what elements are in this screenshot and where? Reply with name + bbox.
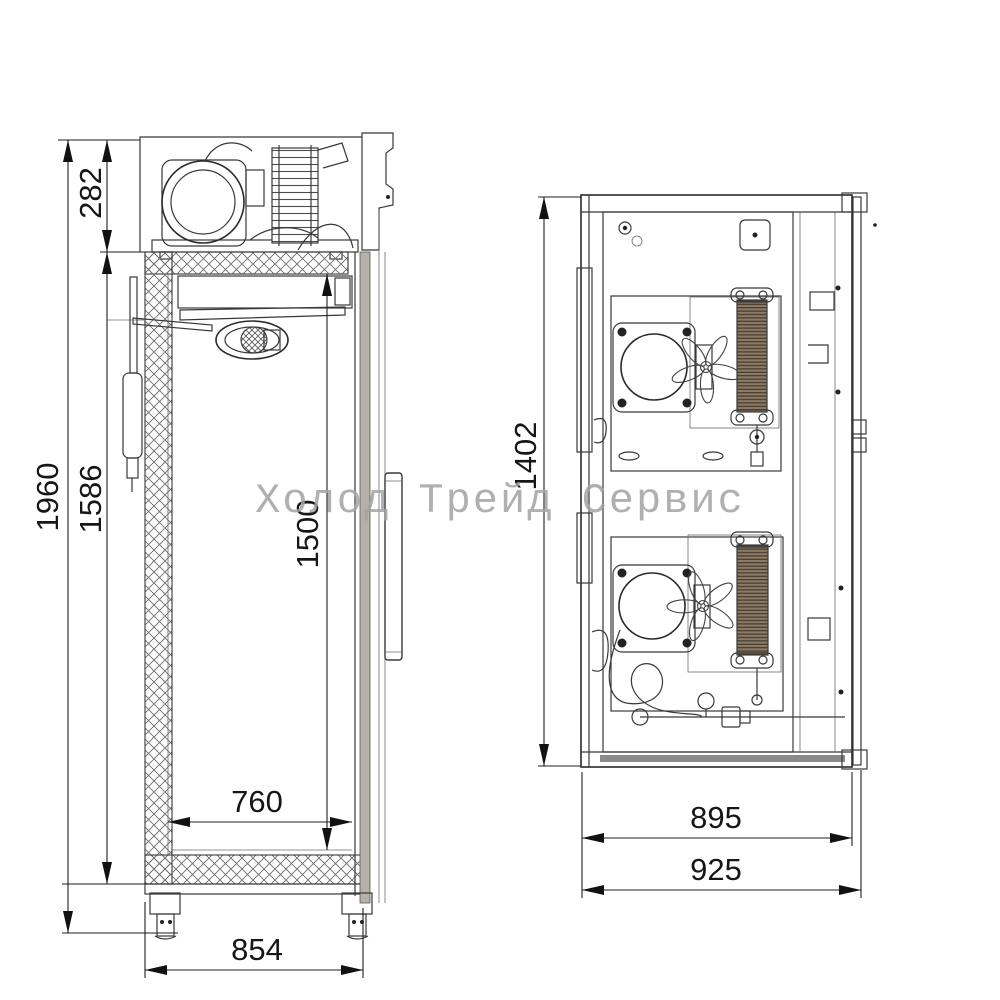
- compressor-body-inner: [171, 170, 235, 234]
- fan-motor-box: [246, 170, 264, 206]
- compressor-body: [162, 161, 244, 243]
- dim-label-282: 282: [73, 167, 108, 219]
- leg-bolt: [160, 920, 164, 924]
- door-edge: [853, 197, 861, 765]
- side-view: 1960 282 1586 1500 760: [30, 133, 402, 978]
- leg-bolt: [168, 920, 172, 924]
- technical-drawing-page: 1960 282 1586 1500 760: [0, 0, 1000, 1000]
- drier-cylinder: [123, 373, 142, 458]
- left-rail-upper: [577, 268, 592, 452]
- door-side: [355, 210, 402, 903]
- hinge-mid-a: [852, 420, 866, 434]
- hinge-mid-b: [852, 438, 866, 452]
- fan-upper: [670, 333, 742, 403]
- dim-label-895: 895: [690, 800, 742, 835]
- condenser-lower: [737, 545, 768, 655]
- dim-282-1586: 282 1586: [62, 140, 145, 884]
- watermark-text: Холод Трейд Сервис: [255, 477, 745, 525]
- insulation-bottom: [145, 855, 362, 884]
- fan-lower: [667, 570, 736, 642]
- dim-label-1960: 1960: [30, 463, 65, 532]
- filter-drier: [107, 277, 145, 492]
- right-bracket-upper: [810, 292, 834, 310]
- drier-tube: [130, 277, 137, 373]
- drip-fitting-upper: [751, 452, 763, 466]
- plan-fittings: [577, 220, 877, 695]
- insulation-top: [145, 252, 348, 274]
- evaporator-plate: [180, 307, 345, 320]
- slot-upper-a: [619, 452, 639, 460]
- clip-upper: [594, 419, 606, 443]
- compressor-upper: [621, 334, 687, 400]
- right-bracket-lower: [808, 618, 830, 640]
- top-right-bracket: [362, 133, 393, 250]
- dim-label-925: 925: [690, 852, 742, 887]
- right-clip: [808, 345, 828, 363]
- refrigerated-cabinet-drawing: 1960 282 1586 1500 760: [0, 0, 1000, 1000]
- compartment-outline: [140, 137, 362, 252]
- unit-upper: [611, 288, 781, 471]
- plan-door: [842, 193, 867, 769]
- bracket-screw: [386, 195, 390, 199]
- valve-stem: [698, 693, 714, 709]
- dim-760: 760: [168, 784, 352, 827]
- dim-label-854: 854: [231, 932, 283, 967]
- duct-end-bracket: [335, 278, 350, 305]
- hinge-top: [842, 193, 867, 212]
- fan-hub: [241, 327, 267, 353]
- clip-lower: [592, 630, 608, 671]
- tube-compressor-top: [205, 143, 252, 161]
- unit-lower: [609, 532, 845, 727]
- condenser-upper: [737, 300, 767, 412]
- plan-bottom-rail: [600, 755, 845, 762]
- dim-label-760: 760: [231, 784, 283, 819]
- top-view: 1402 895 925: [508, 193, 877, 898]
- machinery-compartment: [140, 133, 393, 259]
- leg-bolt: [352, 920, 356, 924]
- dim-1500: 1500: [290, 274, 332, 850]
- drier-cap: [127, 458, 138, 478]
- compressor-lower: [619, 573, 685, 639]
- dim-label-1586: 1586: [73, 465, 108, 534]
- slot-upper-b: [703, 452, 723, 460]
- hinge-bottom: [842, 750, 867, 769]
- condenser-bracket: [318, 143, 348, 168]
- door-panel: [360, 252, 370, 903]
- leg-left-bracket: [150, 893, 180, 914]
- compressor-mount-upper: [613, 323, 695, 412]
